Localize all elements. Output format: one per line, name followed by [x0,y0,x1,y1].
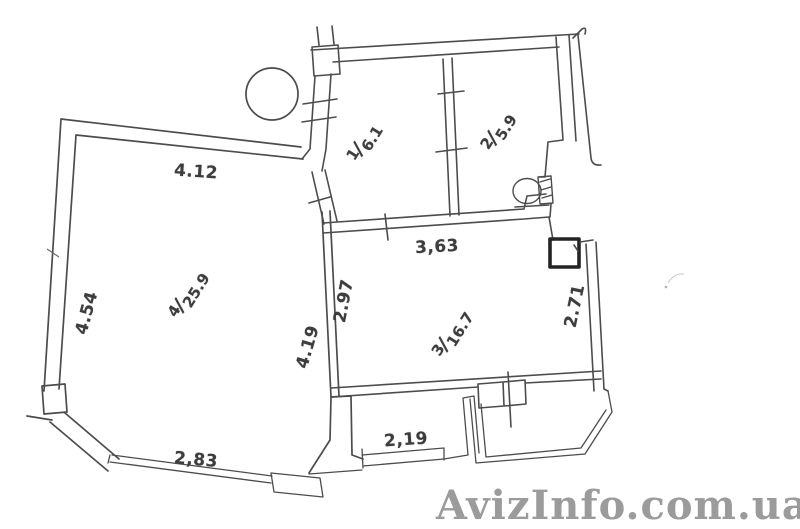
bay-window [108,455,362,497]
dimension-room3-top: 3,63 [415,236,460,258]
round-column-icon [246,68,298,120]
floor-plan: 4.12 4.54 4.19 2,83 2,19 3,63 2.97 2.71 … [0,0,800,528]
top-outer-wall [311,26,579,76]
room4-walls [27,119,303,471]
toilet-icon [513,176,553,204]
room3-bottom-wall [331,371,601,427]
room2-right-wall [540,28,601,177]
dimension-room4-top: 4.12 [173,160,218,183]
scan-smudge [665,274,684,288]
balcony-outline [470,391,612,463]
watermark: AvizInfo.com.ua [436,482,800,529]
dimension-niche-window: 2,19 [383,428,428,451]
room1-left-wall [302,74,337,224]
dimension-bay-window: 2,83 [173,448,219,472]
room1-room2-divider [436,58,467,216]
